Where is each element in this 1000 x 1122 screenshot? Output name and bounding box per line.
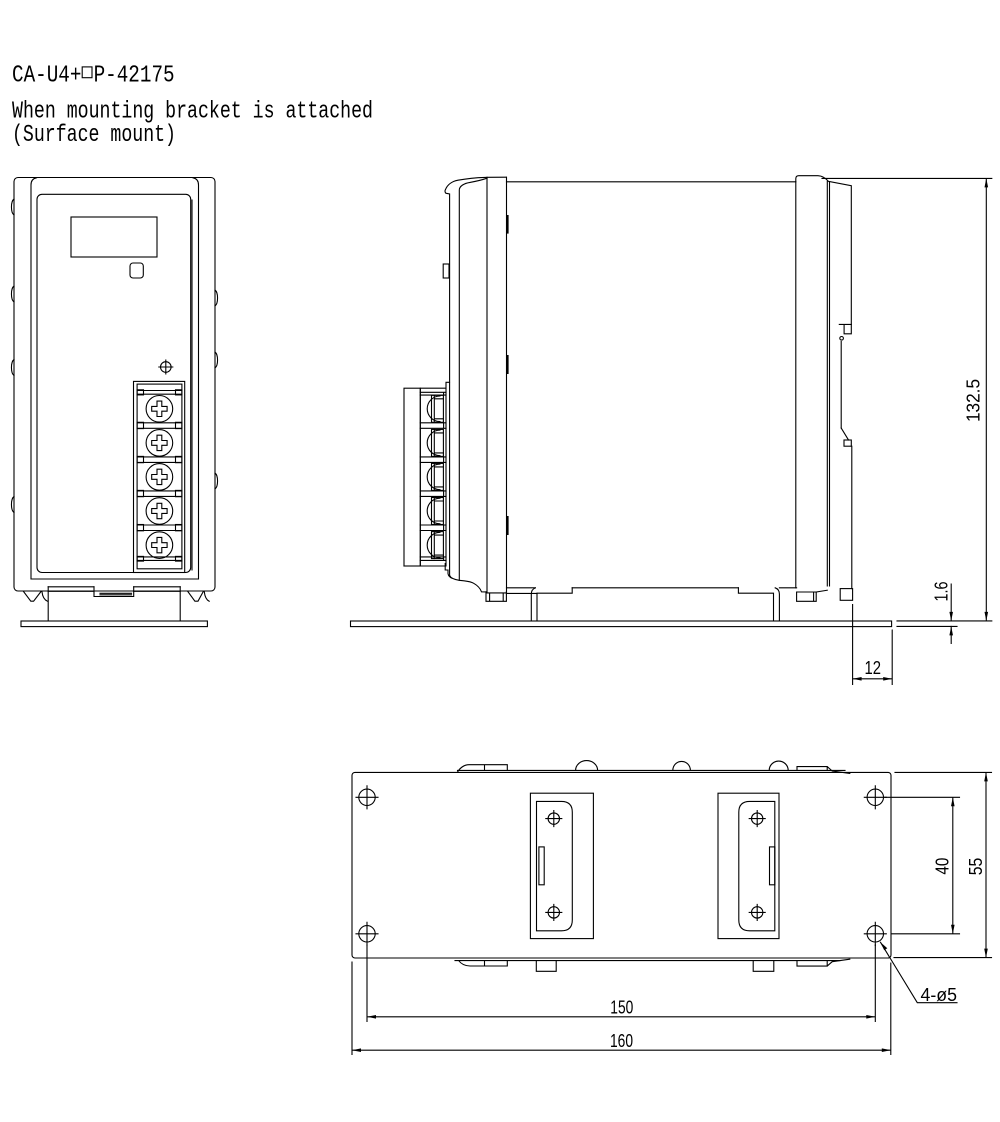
svg-text:1.6: 1.6 <box>932 582 952 602</box>
svg-text:P-42175: P-42175 <box>94 63 175 90</box>
svg-text:40: 40 <box>932 858 952 875</box>
svg-text:160: 160 <box>610 1031 633 1051</box>
svg-text:55: 55 <box>966 858 986 876</box>
svg-text:132.5: 132.5 <box>963 379 983 422</box>
svg-text:150: 150 <box>610 997 633 1017</box>
svg-text:4-ø5: 4-ø5 <box>921 985 958 1005</box>
svg-text:CA-U4+: CA-U4+ <box>12 63 81 90</box>
svg-text:12: 12 <box>865 658 882 678</box>
svg-text:(Surface mount): (Surface mount) <box>12 122 176 149</box>
